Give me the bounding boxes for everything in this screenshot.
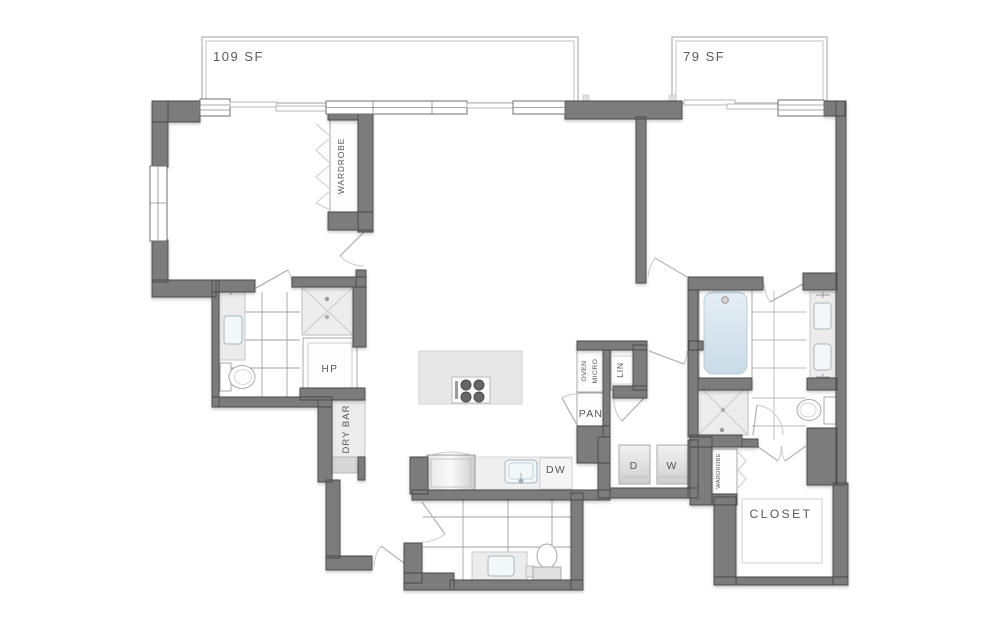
pantry-door [562,394,577,425]
powder-room-door [422,502,445,542]
balcony-right-area-label: 79 SF [683,49,725,64]
hall-to-bath-2-door [649,351,687,364]
tub-faucet-icon [722,297,729,304]
closet-double-doors [757,446,806,461]
floor-plan-page: 109 SF 79 SF [0,0,998,626]
bedroom-2-door [648,258,687,277]
kitchen-sink [505,460,537,483]
dishwasher-label: DW [546,464,566,476]
shower-drain-icon [721,408,725,412]
dryer-label: D [630,460,639,472]
wardrobe-1-label: WARDROBE [336,138,346,194]
kitchen-island [419,351,522,404]
accordion-door-icon [738,452,746,488]
pantry-label: PAN [579,408,603,420]
bath-2-inner-door [753,405,783,435]
oven-label: OVEN [581,361,588,382]
linen-closet: LIN [611,350,633,390]
vanity-2 [810,292,837,380]
sliding-door-panel [230,102,277,107]
entry-door [374,546,408,566]
burner-icon [461,392,471,402]
toilet-2 [797,397,836,424]
accordion-door-icon [316,124,331,210]
burner-icon [474,380,484,390]
wardrobe-1: WARDROBE [316,118,358,212]
shower-1 [302,287,353,335]
burner-icon [474,392,484,402]
balcony-right: 79 SF [672,37,827,103]
laundry-nook: D W [619,445,688,484]
hp-label: HP [322,364,339,375]
closet-label: CLOSET [749,507,812,521]
balcony-left-area-label: 109 SF [213,49,264,64]
shower-drain-icon [325,315,329,319]
burner-icon [461,380,471,390]
shower-head-icon [720,428,724,432]
window-top-small [200,99,230,116]
window-band-right-of-center [513,101,565,114]
wardrobe-2: WARDROBE [712,449,746,494]
window-band-center [326,101,467,114]
linen-door [614,397,645,421]
hp-closet: HP [303,338,357,394]
linen-label: LIN [615,362,625,378]
pantry-column: OVEN MICRO PAN [577,350,604,426]
bathroom-1-door [256,270,292,288]
bedroom-2-to-bath-door [764,284,803,302]
dry-bar-label: DRY BAR [341,405,352,454]
vanity-1 [219,287,245,360]
bathroom-2-tile-floor [752,290,806,440]
balcony-left: 109 SF [202,37,578,103]
kitchen-counter-run: DW [427,452,572,491]
toilet-3 [533,544,561,580]
wardrobe-2-label: WARDROBE [716,453,722,489]
windows [150,99,824,241]
washer-label: W [666,460,677,472]
powder-room [472,544,561,580]
sliding-door-panel [467,103,514,108]
shower-2 [698,385,748,435]
bedroom-1-door [340,232,364,266]
vanity-2-sink [814,344,831,370]
cooktop [452,377,490,403]
floor-plan-svg: 109 SF 79 SF [0,0,998,626]
vanity-1-sink [224,316,242,344]
toilet-3-base [533,567,561,580]
powder-sink [488,556,514,576]
balcony-right-rail-outer [672,37,827,103]
sliding-door-panel [727,104,780,109]
micro-label: MICRO [592,359,599,384]
toilet-1 [220,363,255,391]
toilet-3-bowl [537,544,557,568]
refrigerator [427,455,475,491]
sliding-door-panel [276,106,327,111]
closet-room: CLOSET [742,499,822,563]
bathtub [699,287,752,379]
vanity-2-sink [814,303,831,329]
window-left-wall [150,166,167,241]
shower-head-icon [325,297,329,301]
balcony-left-rail-outer [202,37,578,103]
dry-bar-cabinet [332,457,358,473]
window-bedroom-2 [778,100,824,116]
toilet-2-tank [824,397,836,424]
